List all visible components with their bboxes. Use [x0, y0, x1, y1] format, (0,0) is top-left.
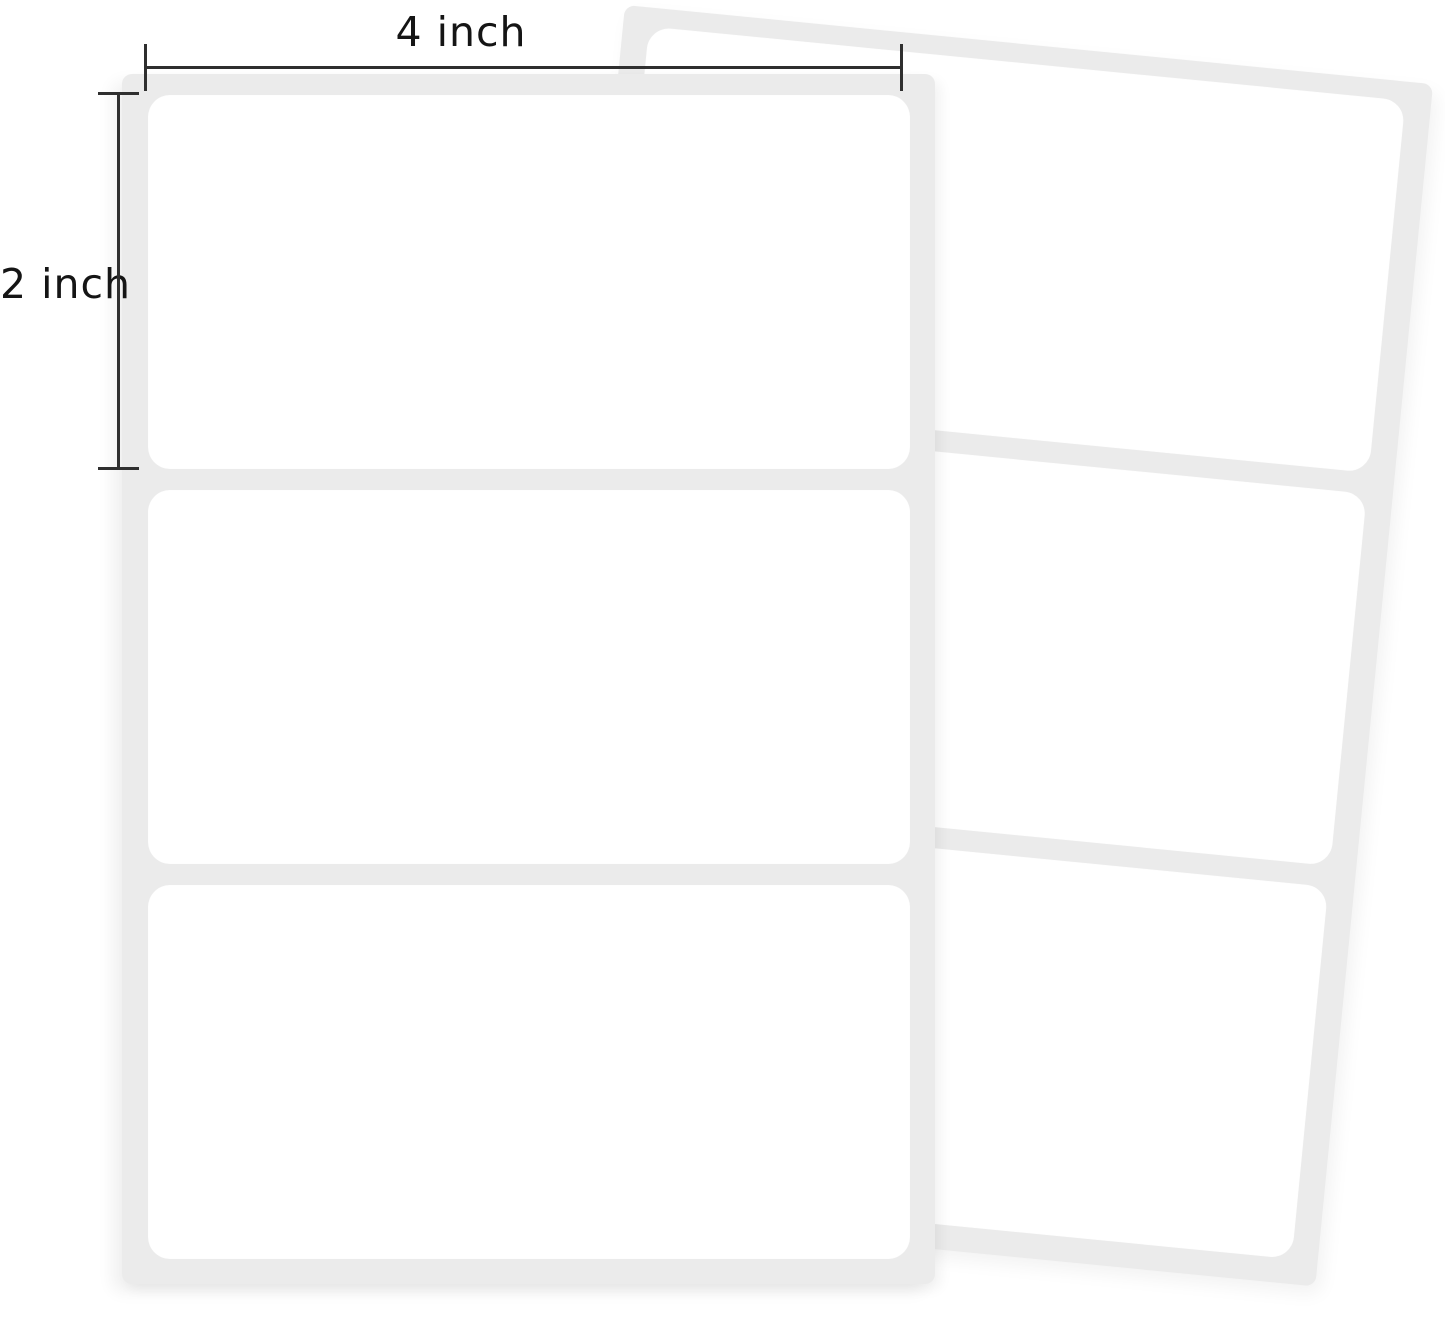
width-dimension-line	[145, 66, 902, 69]
height-dimension-line	[117, 93, 120, 470]
width-dimension-tick-left	[144, 44, 147, 91]
width-dimension-tick-right	[900, 44, 903, 91]
product-image-blank-labels: 4 inch 2 inch	[0, 0, 1445, 1333]
height-dimension-tick-top	[98, 92, 139, 95]
width-dimension-label: 4 inch	[341, 10, 581, 55]
dimension-annotations: 4 inch 2 inch	[0, 0, 1445, 1333]
height-dimension-tick-bottom	[98, 467, 139, 470]
height-dimension-label: 2 inch	[0, 262, 103, 307]
